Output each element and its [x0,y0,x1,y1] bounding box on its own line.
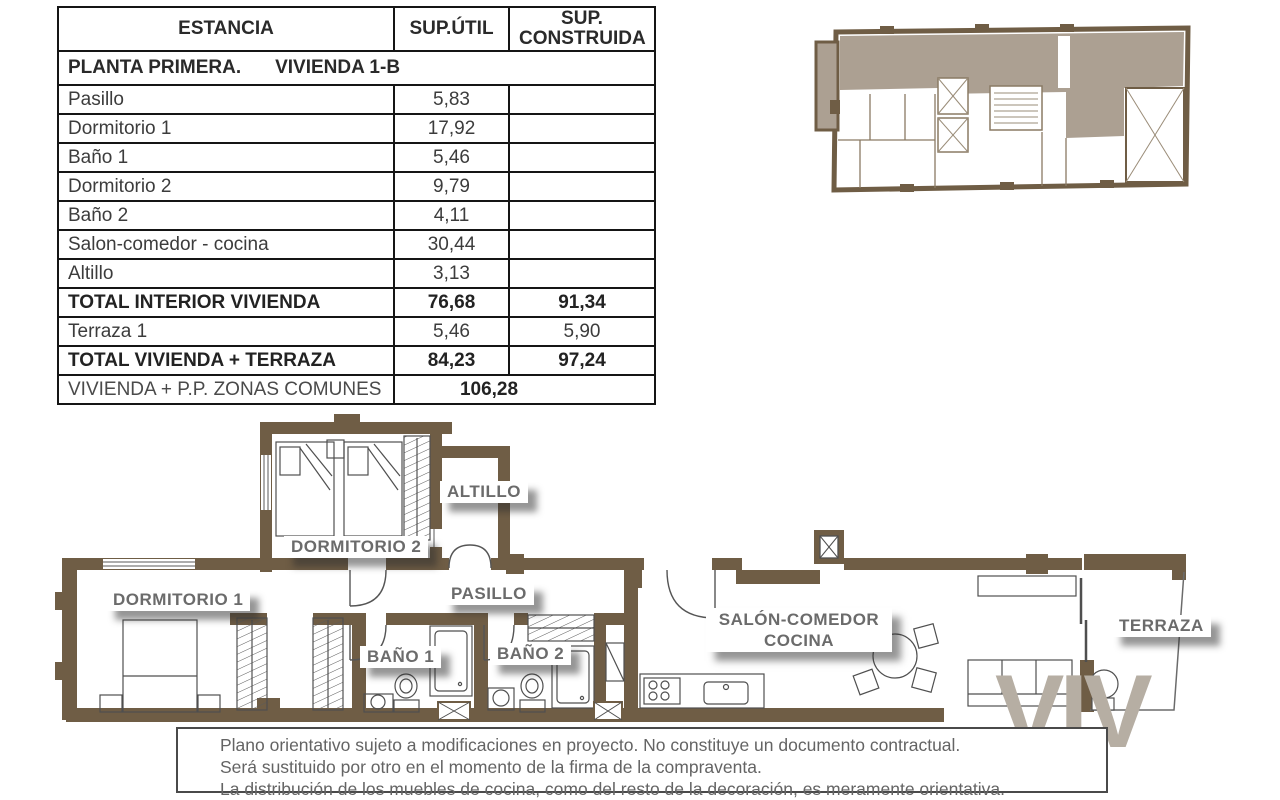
disclaimer-line: Será sustituido por otro en el momento d… [220,756,1106,778]
disclaimer-line: La distribución de los muebles de cocina… [220,778,1106,800]
room-label-dormitorio1: DORMITORIO 1 [106,589,250,611]
room-label-salon-line1: SALÓN-COMEDOR [719,610,879,629]
key-plan [816,24,1188,192]
room-label-dormitorio2: DORMITORIO 2 [284,536,428,558]
room-label-salon: SALÓN-COMEDOR COCINA [706,608,892,652]
floor-plan-page: ESTANCIA SUP.ÚTIL SUP. CONSTRUIDA PLANTA… [0,0,1280,800]
room-label-altillo: ALTILLO [440,481,528,503]
room-label-bano1: BAÑO 1 [360,646,441,668]
furniture [100,436,1118,712]
room-label-terraza: TERRAZA [1112,615,1211,637]
room-label-bano2: BAÑO 2 [490,643,571,665]
room-label-salon-line2: COCINA [764,631,834,650]
terraza-slider [1081,578,1086,662]
room-label-pasillo: PASILLO [444,583,534,605]
disclaimer-line: Plano orientativo sujeto a modificacione… [220,734,1106,756]
disclaimer-box: Plano orientativo sujeto a modificacione… [176,727,1108,793]
